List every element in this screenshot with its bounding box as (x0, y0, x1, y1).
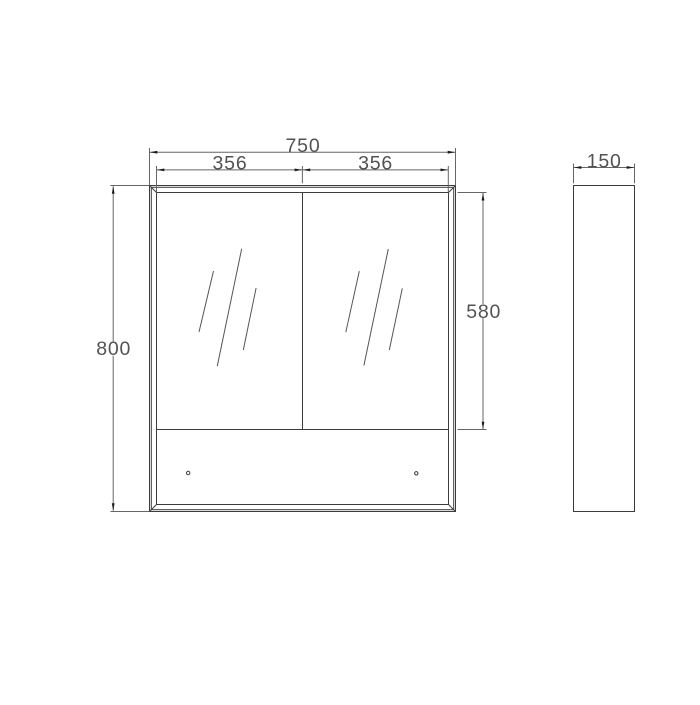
svg-text:750: 750 (286, 135, 321, 157)
svg-text:150: 150 (587, 150, 622, 172)
svg-text:800: 800 (96, 338, 131, 360)
svg-text:356: 356 (213, 152, 248, 174)
svg-text:356: 356 (358, 152, 393, 174)
svg-text:580: 580 (466, 301, 501, 323)
